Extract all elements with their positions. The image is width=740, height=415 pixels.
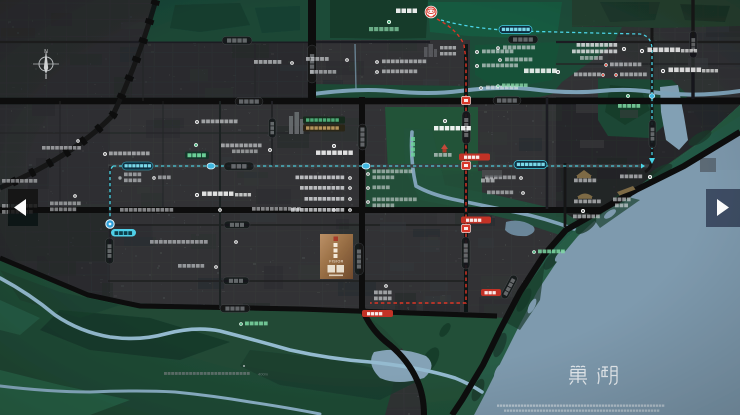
svg-text:400m: 400m xyxy=(258,372,269,377)
svg-text:FISIOR: FISIOR xyxy=(329,260,343,264)
